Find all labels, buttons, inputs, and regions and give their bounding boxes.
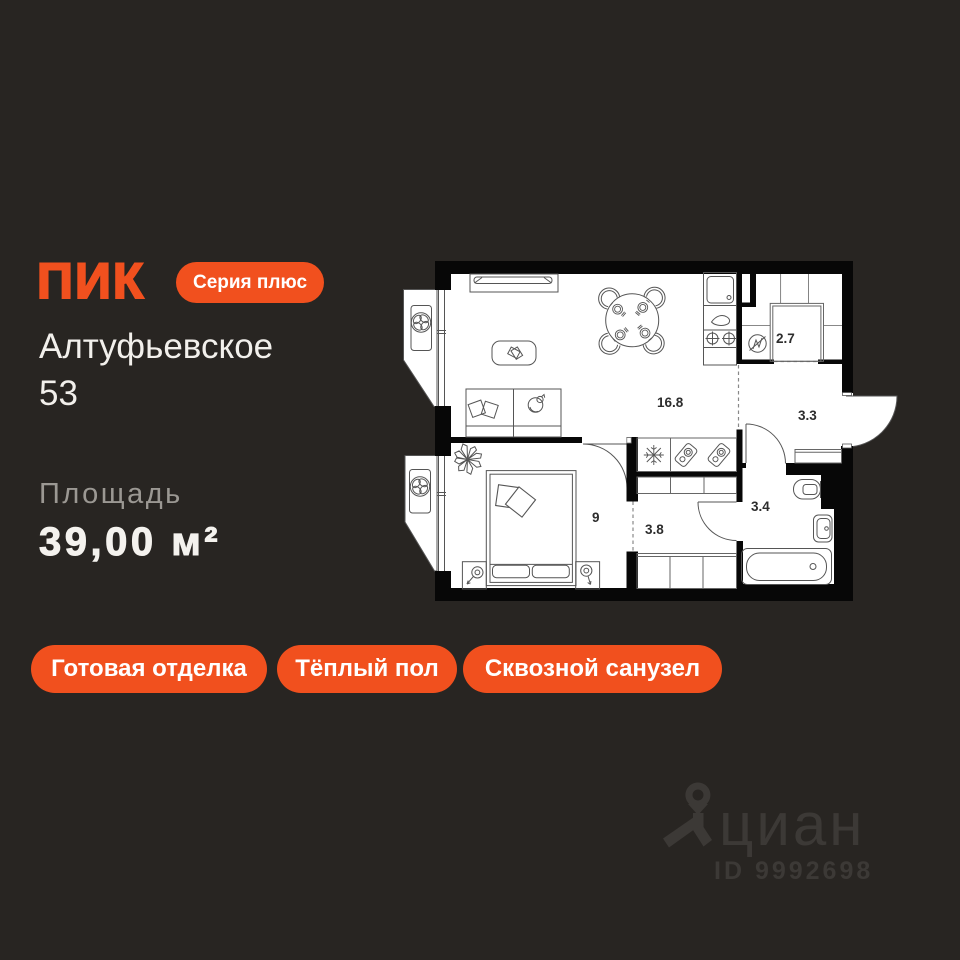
svg-text:2.7: 2.7 [776,331,795,346]
svg-text:16.8: 16.8 [657,395,684,410]
svg-text:9: 9 [592,510,600,525]
svg-text:3.3: 3.3 [798,408,817,423]
svg-text:3.8: 3.8 [645,522,664,537]
svg-text:3.4: 3.4 [751,499,770,514]
